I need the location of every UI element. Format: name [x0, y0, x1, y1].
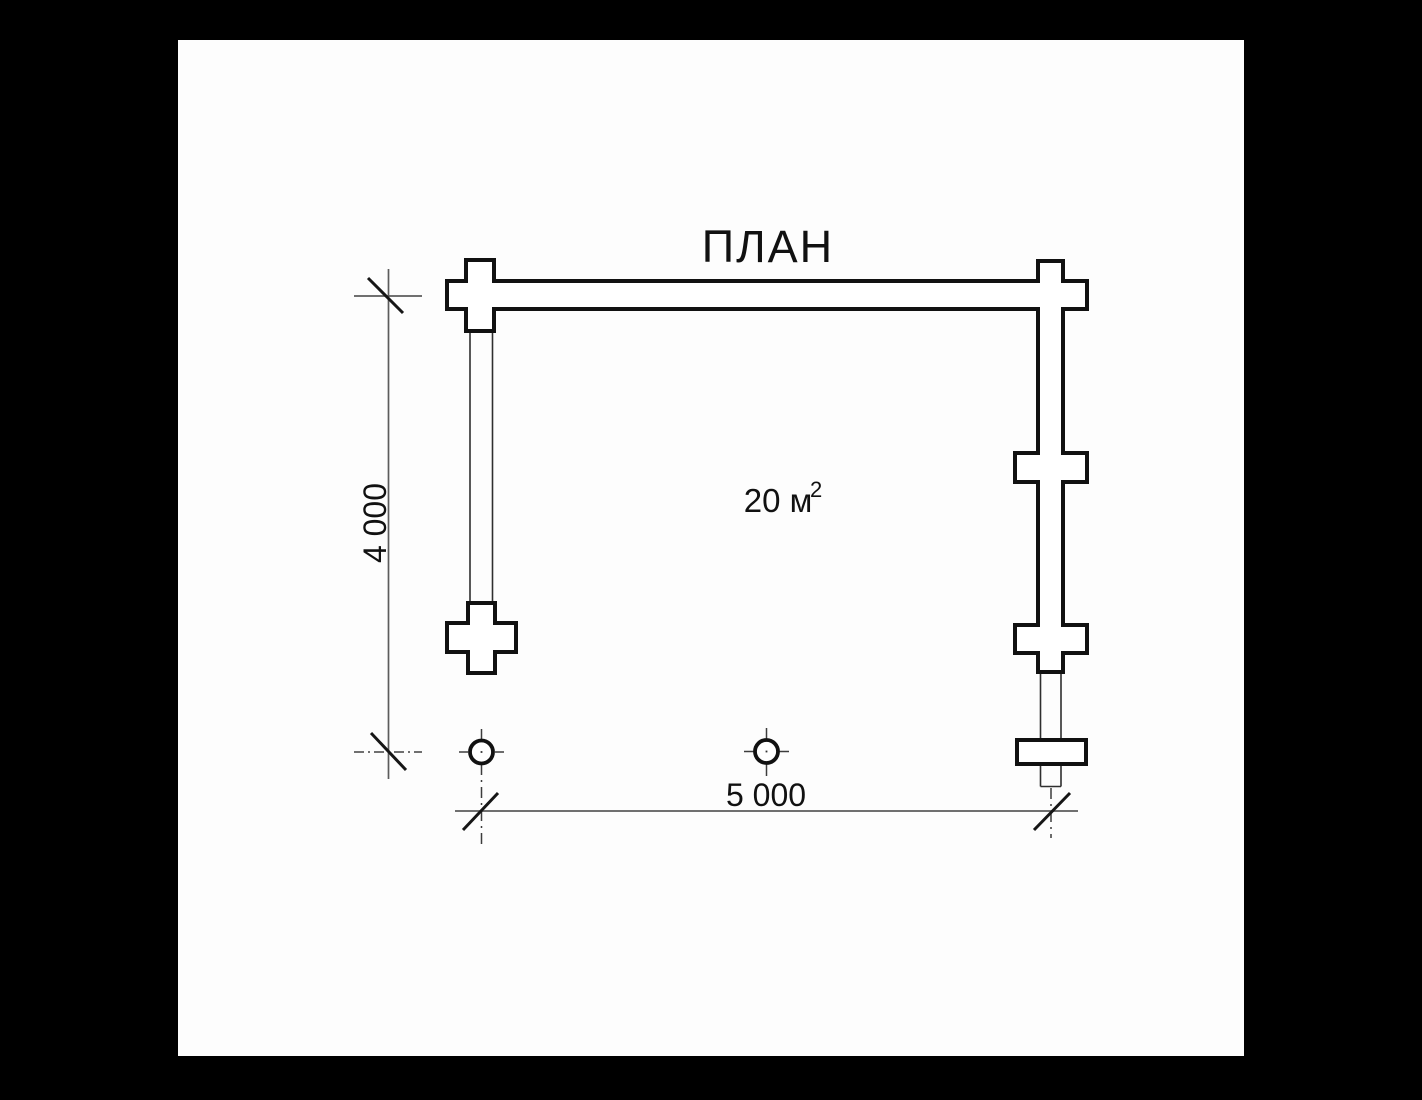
- plan-title: ПЛАН: [702, 221, 834, 272]
- letterbox-bottom: [0, 1056, 1422, 1100]
- vertical-dimension-label: 4 000: [357, 483, 393, 563]
- area-label: 20 м: [744, 482, 813, 519]
- paper-background: [0, 0, 1422, 1100]
- letterbox-top: [0, 0, 1422, 40]
- letterbox-left: [0, 0, 178, 1100]
- pier-axis-center-dot: [481, 751, 483, 753]
- horizontal-dimension-label: 5 000: [726, 777, 806, 813]
- pier-axis-center-dot: [766, 751, 768, 753]
- area-label-superscript: 2: [810, 477, 822, 502]
- letterbox-right: [1244, 0, 1422, 1100]
- plan-sheet: ПЛАН 20 м 2 5 000 4 000: [0, 0, 1422, 1100]
- right-footing-pad: [1017, 740, 1086, 764]
